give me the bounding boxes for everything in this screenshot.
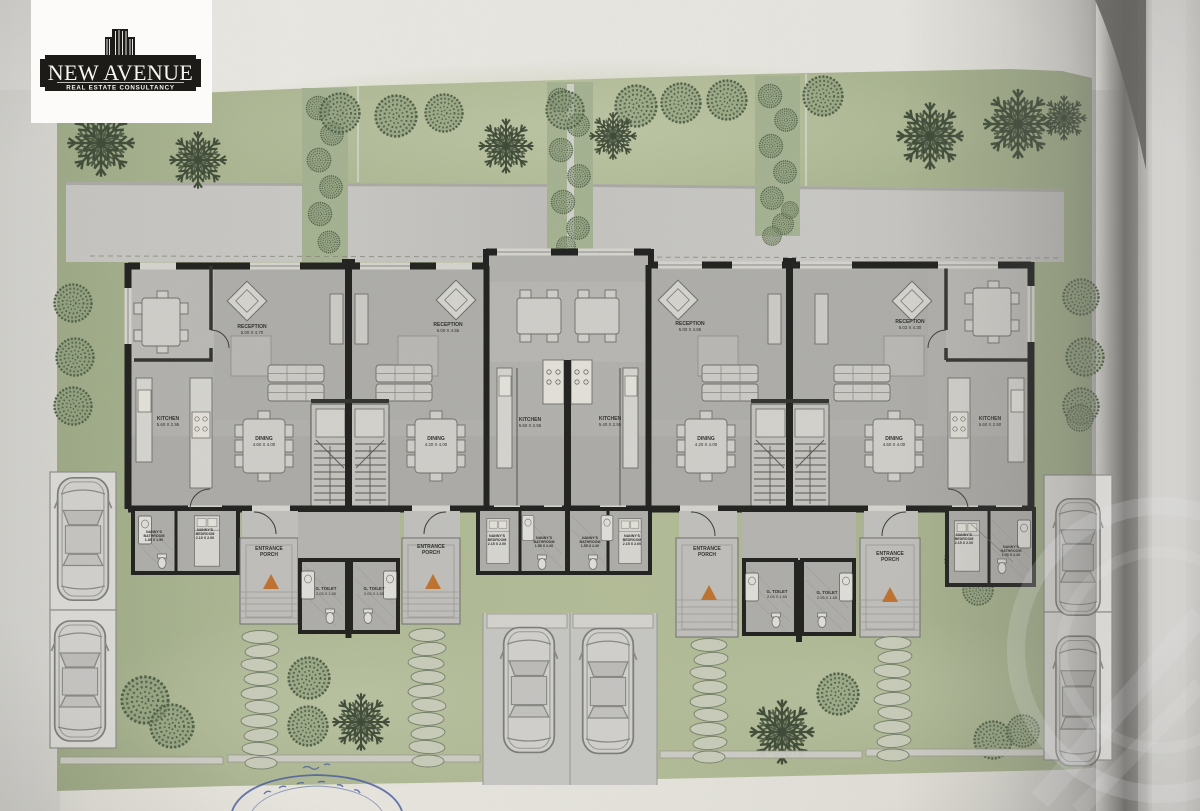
svg-text:NEW AVENUE: NEW AVENUE [48, 60, 194, 85]
svg-text:REAL ESTATE CONSULTANCY: REAL ESTATE CONSULTANCY [66, 85, 175, 92]
